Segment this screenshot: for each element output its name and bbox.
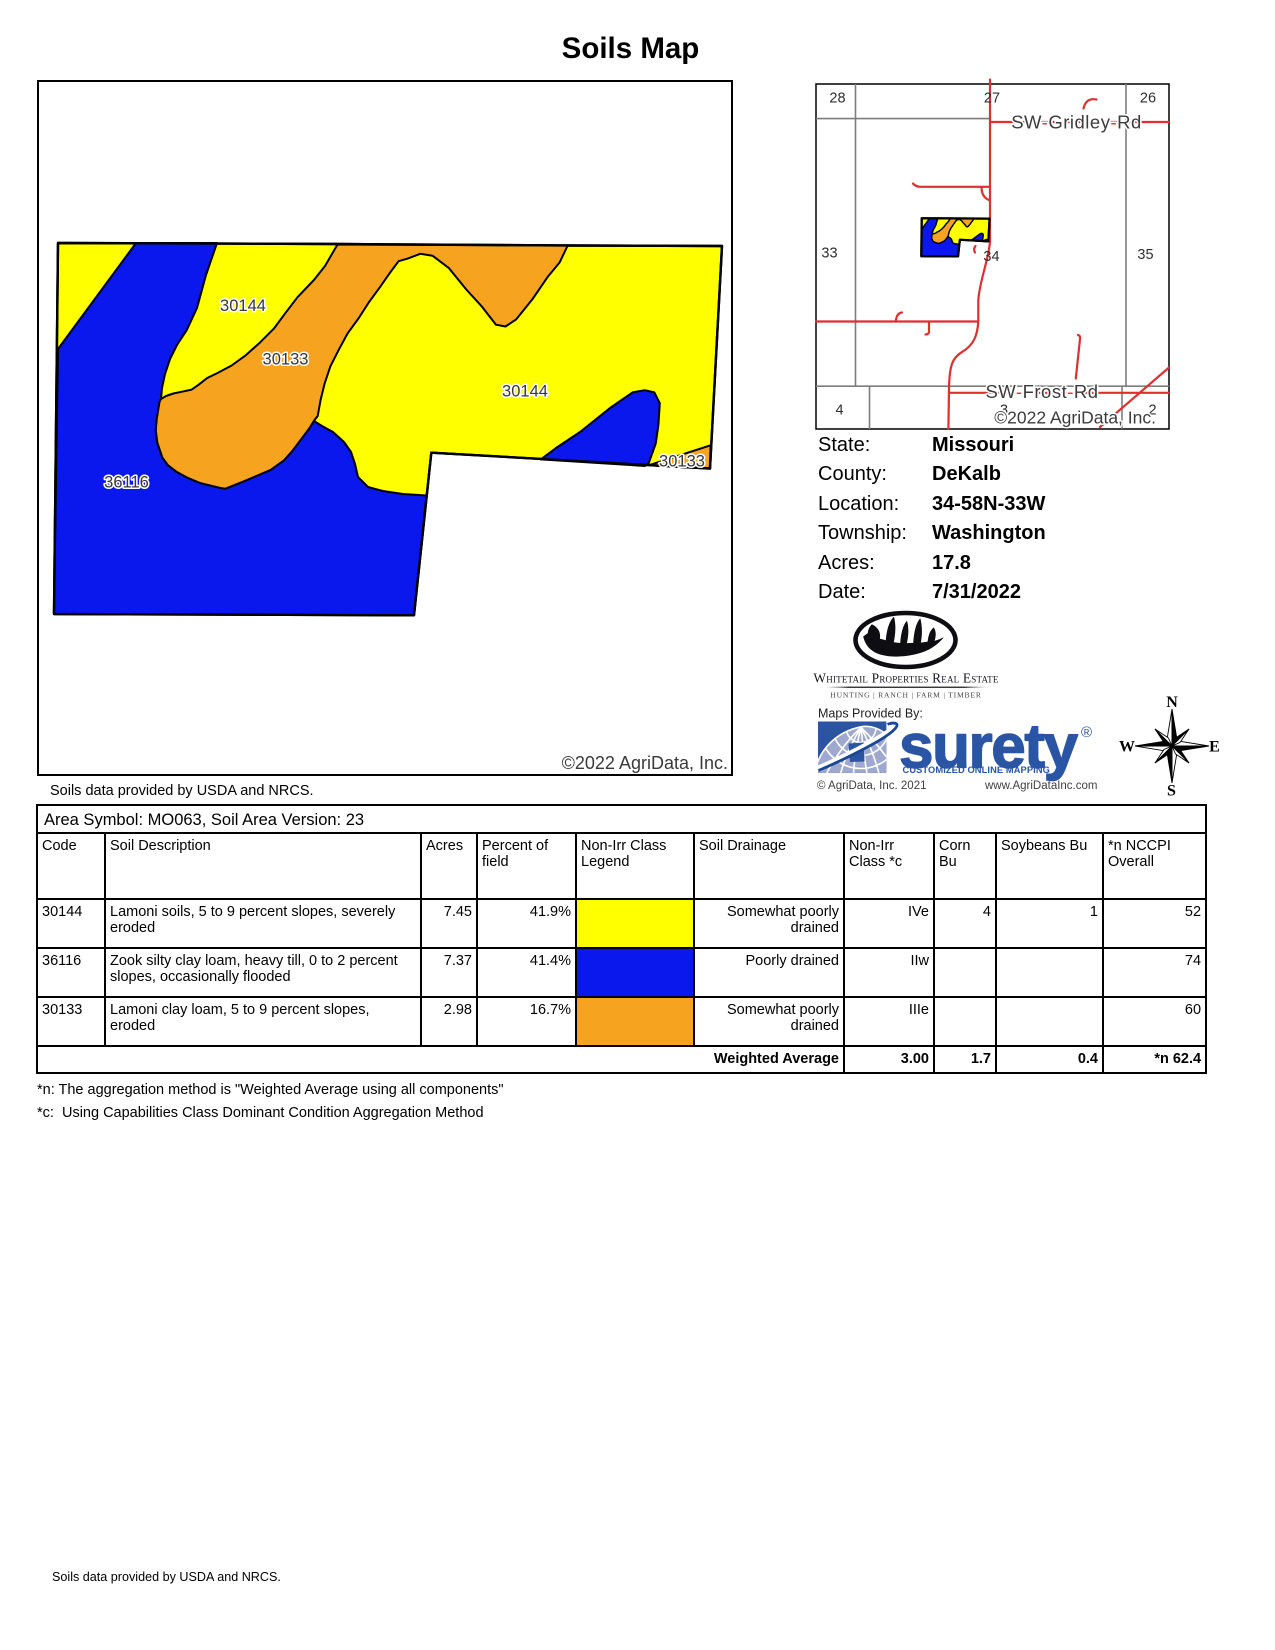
- svg-text:30133: 30133: [659, 453, 705, 471]
- svg-text:33: 33: [821, 246, 837, 262]
- svg-text:HUNTING | RANCH | FARM | TIMBE: HUNTING | RANCH | FARM | TIMBER: [830, 691, 982, 700]
- svg-text:30144: 30144: [502, 383, 548, 401]
- svg-text:E: E: [1209, 739, 1220, 756]
- svg-text:N: N: [1166, 694, 1178, 711]
- svg-text:36116: 36116: [104, 474, 149, 492]
- svg-text:© AgriData, Inc. 2021: © AgriData, Inc. 2021: [817, 780, 926, 792]
- svg-text:30144: 30144: [220, 297, 266, 315]
- svg-text:30133: 30133: [263, 351, 309, 369]
- svg-text:34: 34: [983, 249, 999, 265]
- svg-text:27: 27: [984, 91, 1000, 107]
- svg-text:SW-Frost-Rd: SW-Frost-Rd: [985, 381, 1098, 402]
- svg-text:CUSTOMIZED ONLINE MAPPING: CUSTOMIZED ONLINE MAPPING: [903, 765, 1050, 775]
- svg-text:35: 35: [1137, 247, 1153, 263]
- svg-text:W: W: [1119, 739, 1135, 756]
- svg-text:©2022 AgriData, Inc.: ©2022 AgriData, Inc.: [994, 408, 1156, 428]
- svg-text:©2022 AgriData, Inc.: ©2022 AgriData, Inc.: [562, 753, 728, 773]
- svg-text:4: 4: [835, 403, 843, 419]
- svg-text:Whitetail Properties Real Esta: Whitetail Properties Real Estate: [813, 671, 998, 686]
- svg-text:S: S: [1167, 783, 1176, 800]
- svg-text:26: 26: [1140, 91, 1156, 107]
- svg-text:®: ®: [1081, 724, 1092, 741]
- svg-text:28: 28: [829, 91, 845, 107]
- svg-text:SW-Gridley-Rd: SW-Gridley-Rd: [1011, 112, 1142, 133]
- svg-text:www.AgriDataInc.com: www.AgriDataInc.com: [984, 780, 1097, 792]
